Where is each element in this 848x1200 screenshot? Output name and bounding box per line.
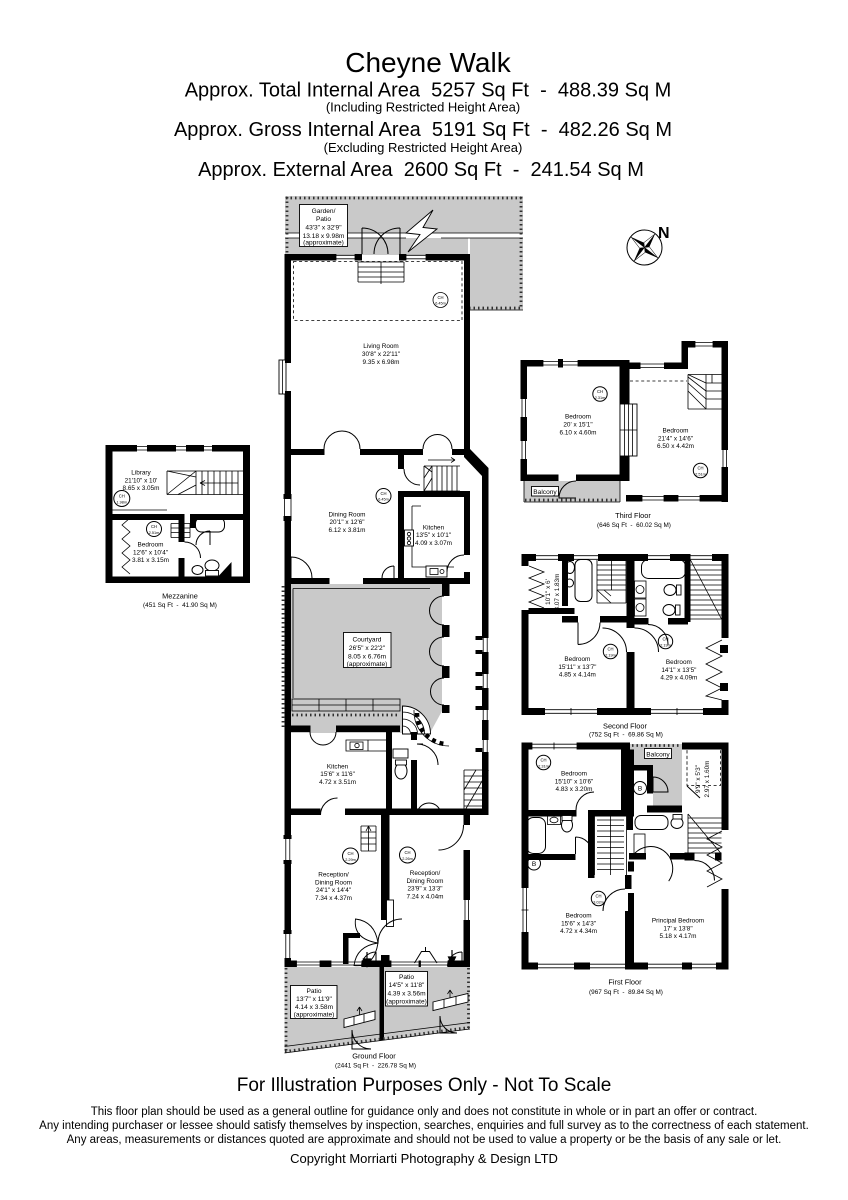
svg-text:(2441 Sq Ft - 226.78 Sq M): (2441 Sq Ft - 226.78 Sq M) [335,1063,416,1070]
svg-text:2.31m: 2.31m [595,396,606,400]
svg-text:15'10" x 10'6": 15'10" x 10'6" [555,778,594,785]
svg-text:Third Floor: Third Floor [615,511,651,520]
svg-text:Any intending purchaser or les: Any intending purchaser or lessee should… [39,1120,809,1132]
svg-text:CH: CH [540,758,546,763]
svg-text:4.14 x 3.58m: 4.14 x 3.58m [295,1004,334,1011]
svg-text:2.19m: 2.19m [660,644,671,648]
svg-text:2.26m: 2.26m [402,857,413,861]
svg-text:CH: CH [595,894,601,899]
svg-text:CH: CH [380,491,386,496]
svg-text:(Including Restricted Height A: (Including Restricted Height Area) [326,100,520,115]
svg-text:(approximate): (approximate) [347,661,388,668]
svg-text:3.02m: 3.02m [593,901,604,905]
svg-text:Patio: Patio [306,988,321,995]
svg-text:Second Floor: Second Floor [603,722,647,731]
svg-text:B: B [532,861,536,868]
svg-text:Bedroom: Bedroom [666,659,692,666]
svg-text:14'5" x 11'8": 14'5" x 11'8" [389,982,425,989]
svg-text:15'11" x 13'7": 15'11" x 13'7" [558,664,596,671]
svg-text:2.31m: 2.31m [538,765,549,769]
svg-text:(646 Sq Ft - 60.02 Sq M): (646 Sq Ft - 60.02 Sq M) [597,522,671,529]
svg-text:17' x 13'8": 17' x 13'8" [663,925,692,932]
svg-text:20' x 15'1": 20' x 15'1" [563,422,592,429]
svg-text:Approx. External Area 2600 Sq: Approx. External Area 2600 Sq Ft - 241.5… [198,159,644,181]
svg-text:2.51m: 2.51m [695,473,706,477]
svg-text:6.45m: 6.45m [435,302,446,306]
svg-text:5.18 x 4.17m: 5.18 x 4.17m [660,933,697,940]
svg-text:15'6" x 11'6": 15'6" x 11'6" [320,771,355,778]
svg-text:Balcony: Balcony [646,752,670,759]
svg-text:9.35 x 6.98m: 9.35 x 6.98m [363,359,400,366]
svg-text:15'6" x 14'3": 15'6" x 14'3" [561,920,596,927]
svg-text:6.45m: 6.45m [378,498,389,502]
svg-text:2.29m: 2.29m [345,858,356,862]
svg-text:7.24 x 4.04m: 7.24 x 4.04m [407,893,444,900]
svg-text:For Illustration Purposes Only: For Illustration Purposes Only - Not To … [237,1075,612,1096]
svg-text:6.12 x 3.81m: 6.12 x 3.81m [329,527,366,534]
svg-text:21'10" x 10': 21'10" x 10' [125,477,158,484]
svg-text:Bedroom: Bedroom [663,428,689,435]
svg-text:Approx. Total Internal Area 5: Approx. Total Internal Area 5257 Sq Ft -… [185,80,672,102]
svg-text:13'7" x 11'9": 13'7" x 11'9" [296,996,332,1003]
svg-text:Dining Room: Dining Room [329,512,366,519]
svg-text:2.51m: 2.51m [149,531,160,535]
svg-text:4.39 x 3.56m: 4.39 x 3.56m [387,990,426,997]
svg-text:4.72 x 3.51m: 4.72 x 3.51m [319,779,356,786]
svg-text:1.98m: 1.98m [117,501,128,505]
svg-text:This floor plan should be used: This floor plan should be used as a gene… [91,1106,758,1118]
svg-text:(967 Sq Ft - 89.84 Sq M): (967 Sq Ft - 89.84 Sq M) [589,989,663,996]
svg-text:4.72 x 4.34m: 4.72 x 4.34m [560,928,597,935]
svg-text:21'4" x 14'6": 21'4" x 14'6" [658,435,693,442]
svg-text:12'6" x 10'4": 12'6" x 10'4" [133,549,168,556]
svg-text:Dining Room: Dining Room [407,878,444,885]
svg-text:4.83 x 3.20m: 4.83 x 3.20m [556,786,593,793]
svg-text:CH: CH [151,524,157,529]
svg-text:Bedroom: Bedroom [564,656,590,663]
svg-text:30'8" x 22'11": 30'8" x 22'11" [362,351,400,358]
svg-text:Ground Floor: Ground Floor [352,1051,396,1060]
svg-text:10'1" x 6': 10'1" x 6' [545,579,552,605]
svg-text:Garden/: Garden/ [312,208,336,215]
svg-text:4.09 x 3.07m: 4.09 x 3.07m [415,540,452,547]
svg-text:9'9" x 5'3": 9'9" x 5'3" [695,765,702,793]
svg-text:Mezzanine: Mezzanine [162,591,198,600]
svg-text:Reception/: Reception/ [318,872,349,879]
svg-text:6.10 x 4.60m: 6.10 x 4.60m [560,429,597,436]
svg-text:First Floor: First Floor [608,978,642,987]
svg-text:26'5" x 22'2": 26'5" x 22'2" [349,645,386,652]
svg-text:Reception/: Reception/ [410,870,441,877]
svg-text:B: B [638,786,642,793]
svg-text:Bedroom: Bedroom [566,913,592,920]
svg-text:(451 Sq Ft - 41.90 Sq M): (451 Sq Ft - 41.90 Sq M) [143,602,217,609]
svg-text:CH: CH [404,850,410,855]
svg-text:Kitchen: Kitchen [423,525,445,532]
svg-text:13'5" x 10'1": 13'5" x 10'1" [416,532,451,539]
svg-text:Patio: Patio [316,216,331,223]
svg-text:CH: CH [119,494,125,499]
svg-text:7.34 x 4.37m: 7.34 x 4.37m [315,895,352,902]
svg-text:8.05 x 6.76m: 8.05 x 6.76m [348,654,387,661]
svg-text:CH: CH [347,851,353,856]
svg-text:(Excluding Restricted Height A: (Excluding Restricted Height Area) [324,140,523,155]
svg-text:4.29 x 4.09m: 4.29 x 4.09m [660,675,697,682]
svg-text:Bedroom: Bedroom [138,542,164,549]
svg-text:Living Room: Living Room [363,343,399,350]
svg-text:43'3" x 32'9": 43'3" x 32'9" [305,225,342,232]
svg-text:Approx. Gross Internal Area 5: Approx. Gross Internal Area 5191 Sq Ft -… [174,119,672,141]
svg-text:Any areas, measurements or dis: Any areas, measurements or distances quo… [67,1134,782,1146]
svg-text:CH: CH [437,295,443,300]
svg-text:(approximate): (approximate) [386,998,427,1005]
svg-text:Principal Bedroom: Principal Bedroom [652,918,704,925]
svg-text:Patio: Patio [399,974,414,981]
svg-text:3.81 x 3.15m: 3.81 x 3.15m [132,557,169,564]
svg-text:CH: CH [697,466,703,471]
svg-text:24'1" x 14'4": 24'1" x 14'4" [316,887,351,894]
svg-text:Kitchen: Kitchen [327,764,349,771]
svg-text:2.97 x 1.60m: 2.97 x 1.60m [704,761,711,798]
svg-text:Balcony: Balcony [533,489,557,496]
svg-text:2.19m: 2.19m [605,654,616,658]
svg-text:Courtyard: Courtyard [353,637,382,644]
svg-text:CH: CH [607,647,613,652]
svg-text:Cheyne Walk: Cheyne Walk [345,47,511,78]
svg-text:Library: Library [131,470,151,477]
svg-text:(approximate): (approximate) [303,240,344,247]
svg-text:23'9" x 13'3": 23'9" x 13'3" [407,886,442,893]
svg-text:Copyright Morriarti Photograph: Copyright Morriarti Photography & Design… [290,1151,558,1166]
svg-text:Bedroom: Bedroom [561,771,587,778]
svg-text:3.07 x 1.83m: 3.07 x 1.83m [554,574,561,611]
svg-text:Dining Room: Dining Room [315,879,352,886]
svg-text:N: N [658,225,670,242]
svg-text:8.65 x 3.05m: 8.65 x 3.05m [123,485,160,492]
svg-text:(approximate): (approximate) [294,1011,335,1018]
svg-text:4.85 x 4.14m: 4.85 x 4.14m [559,672,596,679]
svg-text:14'1" x 13'5": 14'1" x 13'5" [661,667,696,674]
svg-text:CH: CH [662,637,668,642]
svg-text:(752 Sq Ft - 69.86 Sq M): (752 Sq Ft - 69.86 Sq M) [589,732,663,739]
svg-text:20'1" x 12'6": 20'1" x 12'6" [329,519,364,526]
svg-text:Bedroom: Bedroom [565,414,591,421]
svg-text:CH: CH [597,389,603,394]
svg-text:6.50 x 4.42m: 6.50 x 4.42m [657,443,694,450]
